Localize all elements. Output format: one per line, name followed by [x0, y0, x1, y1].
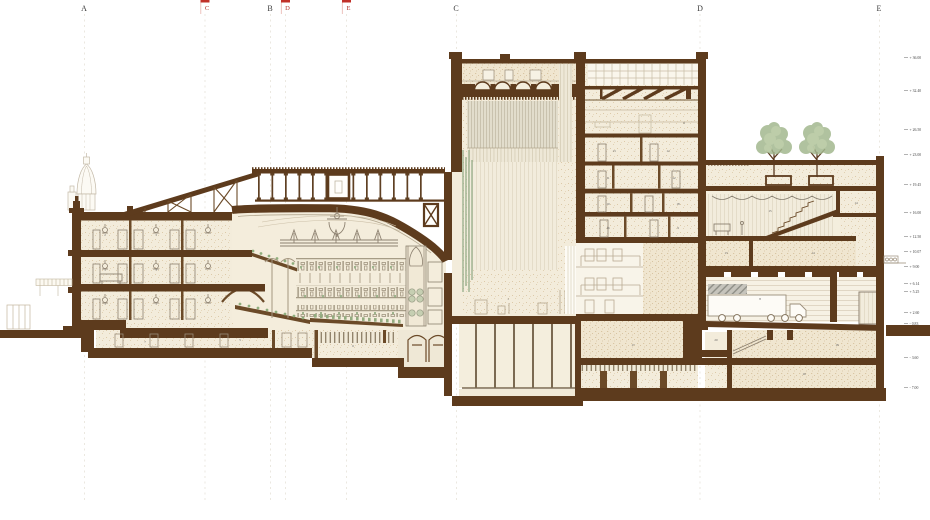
svg-text:16: 16: [606, 226, 610, 230]
svg-text:+ 2.60: + 2.60: [910, 311, 920, 315]
svg-text:14: 14: [854, 201, 858, 205]
svg-text:13: 13: [612, 149, 616, 153]
svg-text:B: B: [267, 4, 272, 13]
svg-text:+ 10.07: + 10.07: [910, 250, 922, 254]
svg-text:13: 13: [724, 251, 728, 255]
svg-text:19: 19: [802, 372, 806, 376]
svg-text:C: C: [205, 5, 209, 12]
svg-text:17: 17: [631, 343, 635, 347]
svg-text:+ 26.50: + 26.50: [910, 128, 922, 132]
svg-text:+ 12.50: + 12.50: [910, 235, 922, 239]
svg-text:A: A: [81, 4, 87, 13]
svg-text:C: C: [453, 4, 458, 13]
svg-text:18: 18: [676, 202, 680, 206]
svg-text:10: 10: [606, 202, 610, 206]
svg-text:E: E: [877, 4, 882, 13]
svg-text:D: D: [697, 4, 703, 13]
svg-text:- 3.60: - 3.60: [910, 356, 919, 360]
svg-text:+ 32.40: + 32.40: [910, 89, 922, 93]
svg-text:+ 23.00: + 23.00: [910, 153, 922, 157]
svg-text:+ 6.14: + 6.14: [910, 282, 920, 286]
svg-text:D: D: [285, 5, 290, 12]
svg-text:11: 11: [606, 176, 609, 180]
svg-text:+ 19.45: + 19.45: [910, 183, 922, 187]
svg-text:14: 14: [811, 251, 815, 255]
svg-text:18: 18: [835, 343, 839, 347]
svg-text:12: 12: [672, 176, 676, 180]
svg-text:+ 5.25: + 5.25: [910, 290, 920, 294]
svg-text:+ 9.00: + 9.00: [910, 265, 920, 269]
svg-text:20: 20: [714, 338, 718, 342]
svg-text:15: 15: [768, 209, 772, 213]
svg-text:12: 12: [666, 149, 670, 153]
svg-text:+ 36.00: + 36.00: [910, 56, 922, 60]
svg-text:- 7.00: - 7.00: [910, 386, 919, 390]
svg-text:E: E: [347, 5, 351, 12]
svg-text:- 0.83: - 0.83: [910, 322, 919, 326]
svg-text:+ 16.00: + 16.00: [910, 211, 922, 215]
